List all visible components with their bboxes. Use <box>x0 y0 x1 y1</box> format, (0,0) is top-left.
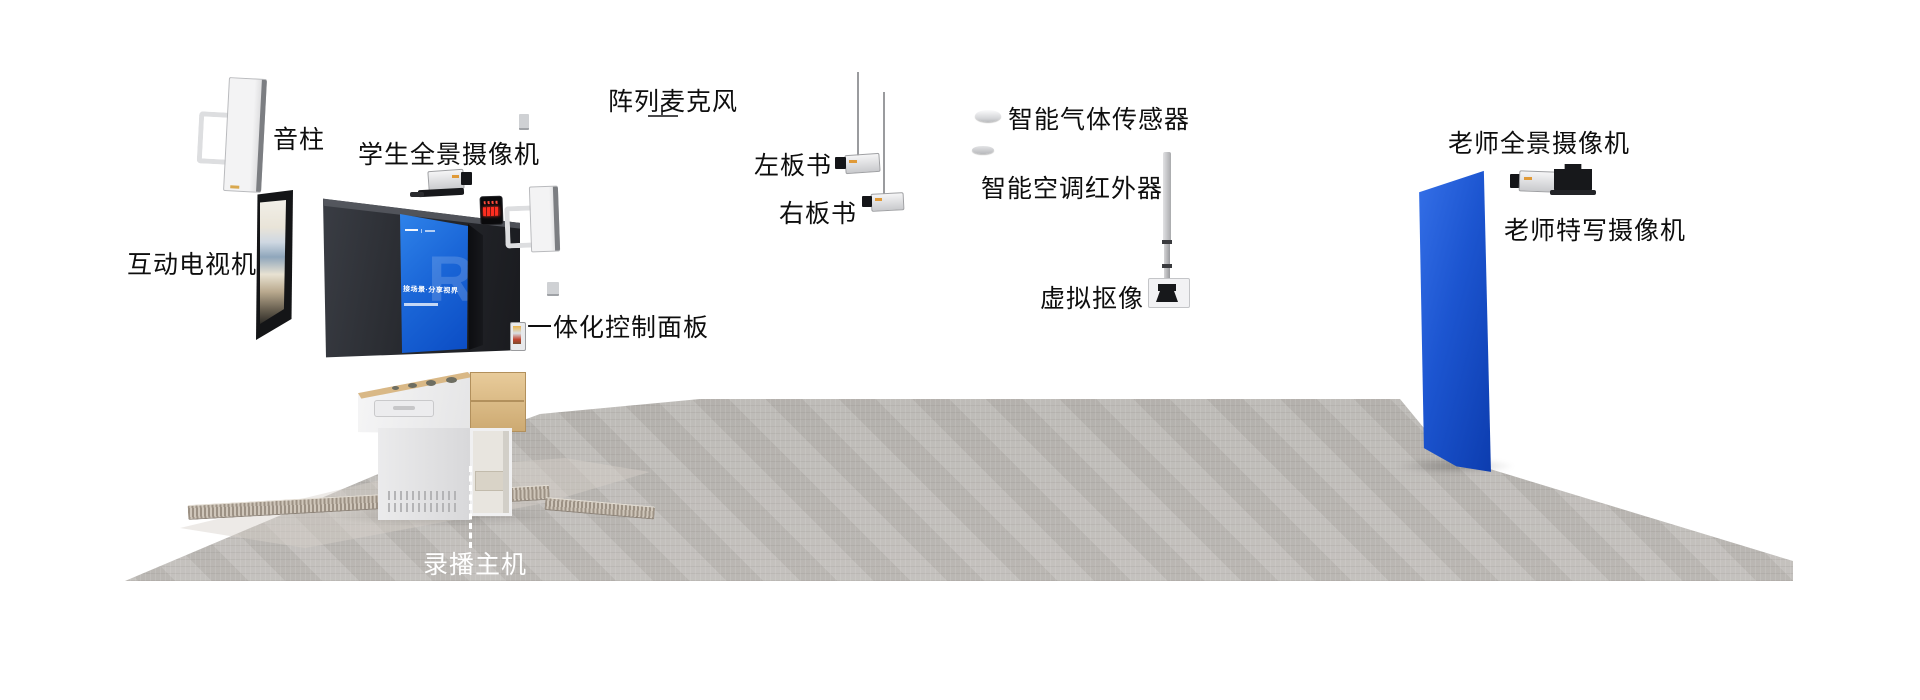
label-left-board-camera: 左板书 <box>754 146 832 182</box>
right-board-camera-pole <box>883 92 885 194</box>
student-desks-area <box>0 0 1920 700</box>
wood-box-seam <box>470 400 524 402</box>
interactive-tv-device <box>256 190 293 340</box>
pedestal-vents <box>388 503 460 512</box>
teacher-camera-device <box>1502 164 1594 198</box>
screen-logo-divider <box>421 229 422 233</box>
pole-joint <box>1162 264 1172 268</box>
label-recording-host: 录播主机 <box>423 545 527 581</box>
label-teacher-panorama-camera: 老师全景摄像机 <box>1448 124 1630 160</box>
camera-lens-icon <box>835 157 846 169</box>
label-virtual-keying: 虚拟抠像 <box>1040 279 1144 315</box>
wall-button-marker <box>547 282 559 296</box>
smart-classroom-diagram: 接场景·分享视界 R <box>0 0 1920 700</box>
podium <box>340 360 540 530</box>
control-panel-screen <box>513 326 521 344</box>
label-array-microphone: 阵列麦克风 <box>608 82 738 118</box>
camera-lens-icon <box>862 196 872 207</box>
label-control-panel: 一体化控制面板 <box>527 308 709 344</box>
podium-wood-box <box>470 372 526 432</box>
camera-brand-tag <box>849 160 857 163</box>
pole-joint <box>1162 240 1172 244</box>
right-board-camera-device <box>860 191 904 215</box>
camera-brand-tag <box>452 175 459 178</box>
pedestal-vents <box>388 491 460 500</box>
speaker-wall-bracket-right <box>504 206 532 249</box>
gas-sensor-device <box>975 110 1001 122</box>
label-interactive-tv: 互动电视机 <box>127 245 257 281</box>
keying-pole-lower <box>1164 244 1170 278</box>
integrated-control-panel <box>510 322 526 351</box>
student-panorama-camera-device <box>410 166 480 202</box>
wall-panel-marker <box>519 114 529 130</box>
ac-infrared-device <box>972 146 994 154</box>
screen-logo-bar <box>405 229 418 231</box>
label-ac-infrared: 智能空调红外器 <box>981 169 1163 205</box>
left-board-camera-pole <box>857 72 859 156</box>
camera-brand-tag <box>1524 177 1532 180</box>
camera-mount-foot <box>410 192 424 197</box>
camera-brand-tag <box>875 198 882 201</box>
label-right-board-camera: 右板书 <box>779 194 857 230</box>
led-timer <box>480 196 504 226</box>
label-student-panorama-camera: 学生全景摄像机 <box>358 135 540 171</box>
label-gas-sensor: 智能气体传感器 <box>1008 100 1190 136</box>
sound-column-speaker-left <box>223 77 267 193</box>
keying-pole-upper <box>1163 152 1171 244</box>
recorder-pointer-dashed-line <box>469 466 472 548</box>
camera-mount-base <box>1550 190 1596 195</box>
desk-hole <box>446 377 457 383</box>
desk-hole <box>408 383 417 388</box>
camera-pan-tilt-mount <box>1554 164 1592 192</box>
speaker-accent <box>230 185 239 188</box>
led-timer-dots <box>484 201 498 204</box>
camera-body <box>871 192 905 212</box>
screen-logo-sub <box>425 230 435 232</box>
podium-equipment-bay <box>470 428 512 516</box>
keying-camera-top <box>1158 284 1176 291</box>
desk-hole <box>392 386 399 390</box>
camera-mount-arm <box>418 188 464 197</box>
podium-drawer <box>374 400 434 417</box>
screen-watermark: R <box>428 247 468 311</box>
label-sound-column: 音柱 <box>273 120 325 156</box>
camera-lens-icon <box>461 172 472 185</box>
tv-picture <box>260 200 286 324</box>
bay-inner-wall <box>503 431 509 513</box>
podium-pedestal <box>378 428 470 520</box>
camera-body <box>844 153 880 174</box>
left-board-camera-device <box>833 152 881 178</box>
desk-hole <box>426 380 436 386</box>
sound-column-speaker-right <box>529 186 560 253</box>
drawer-handle <box>393 406 415 410</box>
label-teacher-closeup-camera: 老师特写摄像机 <box>1504 211 1686 247</box>
board-recess <box>468 224 483 350</box>
led-timer-digits <box>483 207 499 217</box>
board-screen: 接场景·分享视界 R <box>400 213 468 353</box>
